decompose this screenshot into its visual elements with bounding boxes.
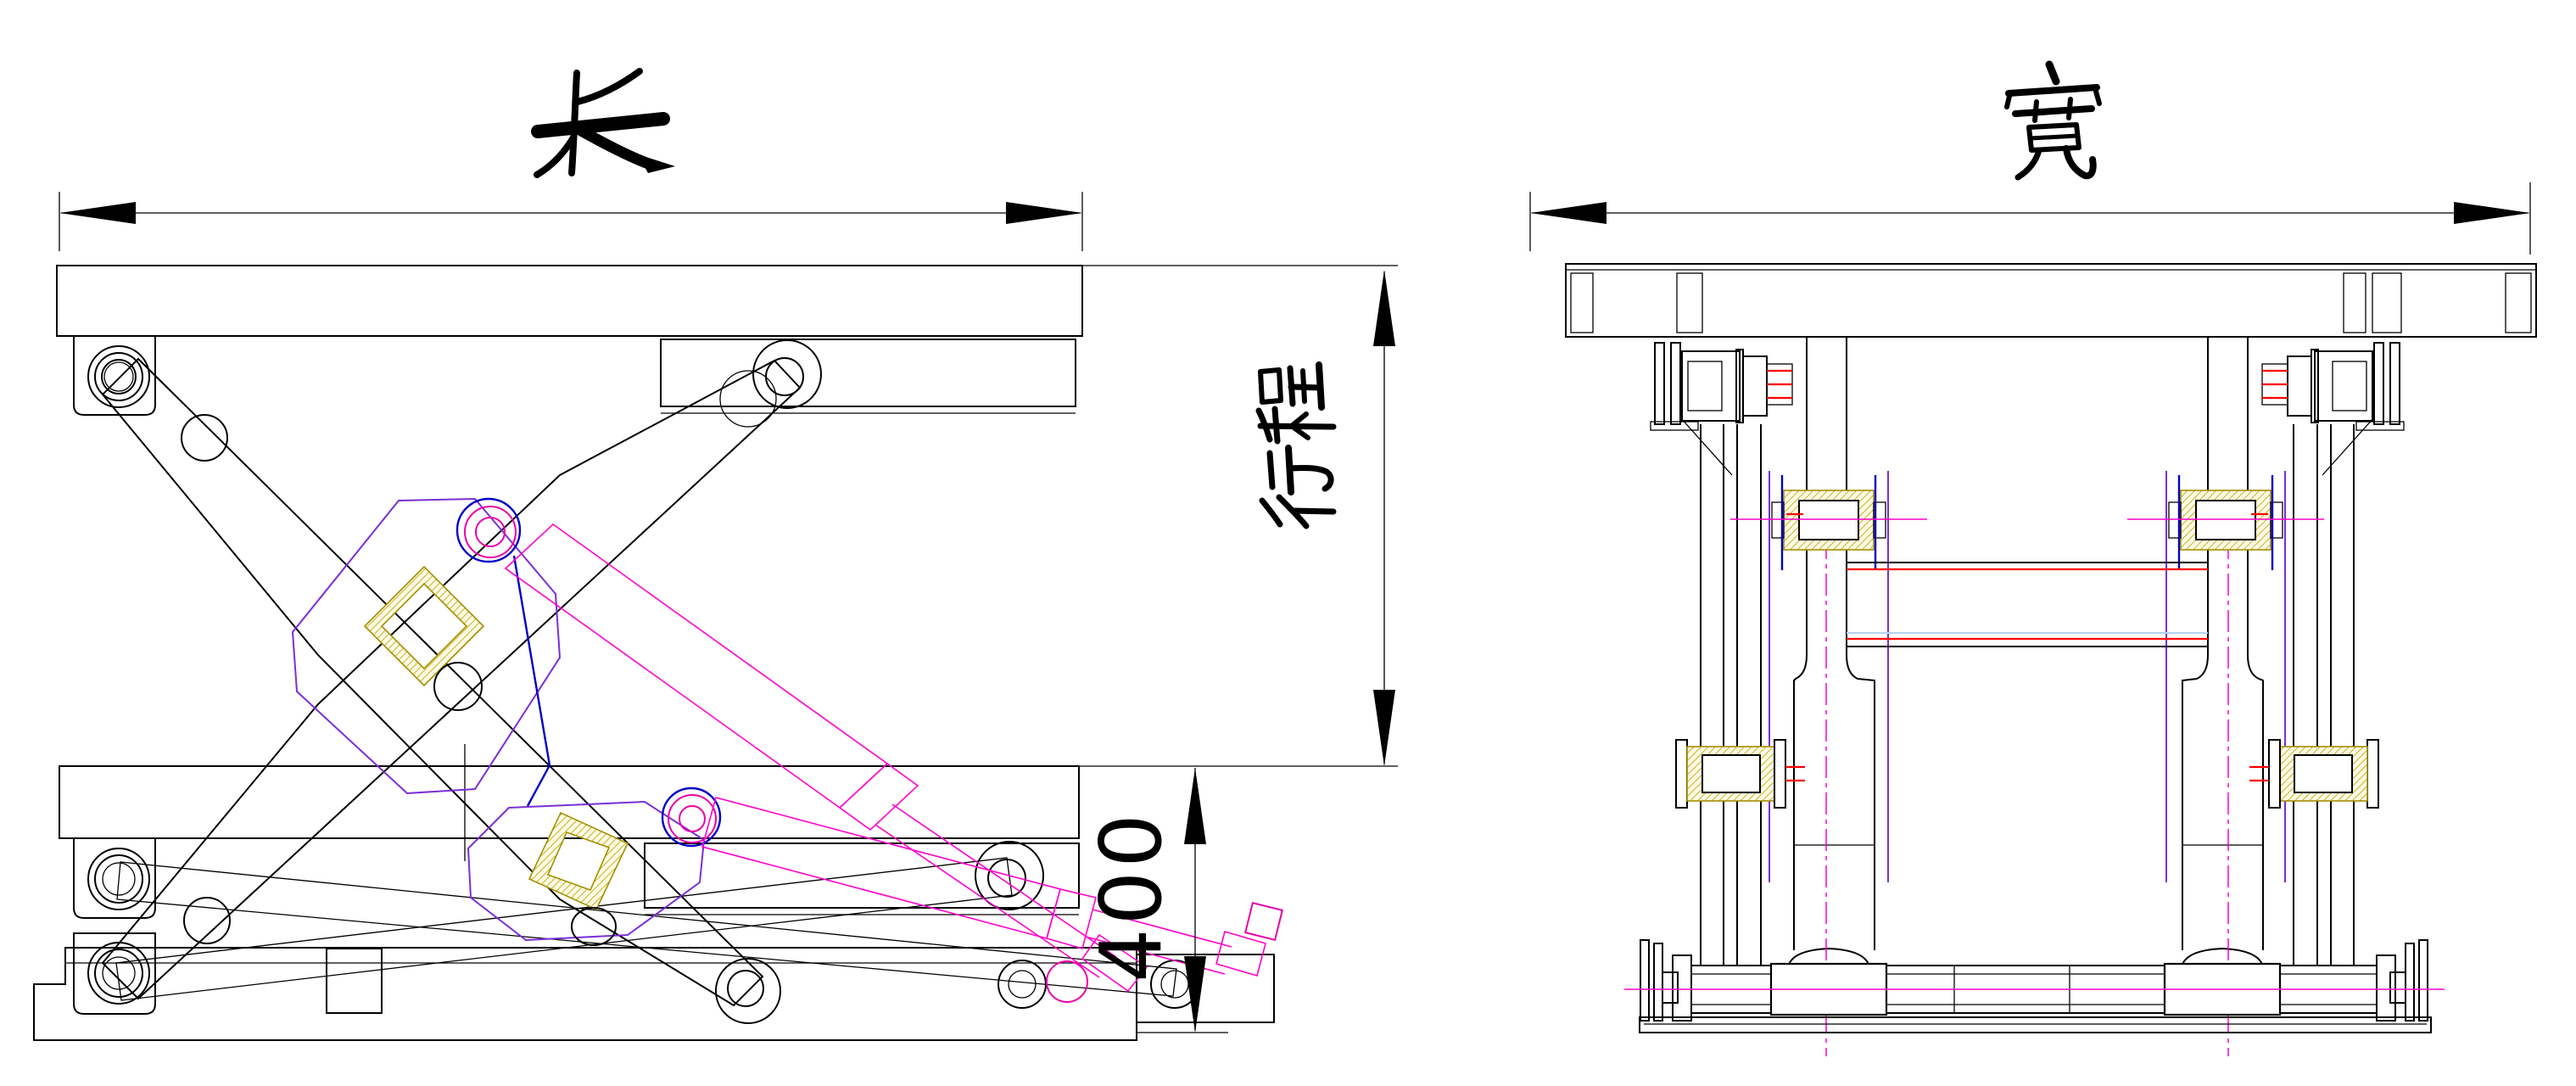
- mid-pivot-right: [2127, 471, 2324, 882]
- length-dimension: 长: [59, 68, 1082, 251]
- lower-pivot-left: [1676, 740, 1805, 808]
- pin-boss-extended: [465, 507, 516, 557]
- mid-pivot-left: [1730, 471, 1927, 882]
- base-front: [1624, 940, 2445, 1033]
- front-view: 宽: [1530, 64, 2536, 1056]
- rib: [1571, 273, 1593, 333]
- drawing-svg: 长: [0, 0, 2576, 1086]
- side-view: 长: [34, 68, 1450, 1040]
- stop-block: [327, 949, 382, 1013]
- rib: [2506, 273, 2531, 333]
- column-right: [2182, 337, 2263, 1056]
- arrowhead-left: [59, 202, 136, 224]
- arrowhead-up: [1373, 270, 1395, 346]
- actuator-anchor-pin: [1245, 903, 1282, 940]
- top-pivot-right: [2262, 343, 2404, 475]
- lower-pivot-right: [2249, 740, 2378, 808]
- rib: [1677, 273, 1702, 333]
- pin-boss-collapsed: [668, 795, 716, 842]
- cross-tube: [1847, 563, 2208, 647]
- end-bolt-right: [2390, 972, 2406, 1003]
- arrowhead-left: [1530, 202, 1607, 224]
- base-plate: [1640, 1017, 2431, 1033]
- arrowhead-up: [1184, 768, 1206, 844]
- collapsed-height-dimension: 400: [1081, 768, 1228, 1033]
- platform-extended: [57, 266, 1398, 427]
- scissor-arm-collapsed-a: [117, 862, 1176, 996]
- scissor-arm-extended-b: [103, 361, 800, 999]
- top-pivot-left: [1651, 343, 1792, 475]
- scissor-arm-collapsed-b: [116, 858, 1012, 1000]
- link-plate-collapsed: [468, 788, 720, 945]
- arrowhead-down: [1184, 956, 1206, 1033]
- link-plate-extended: [293, 499, 560, 806]
- width-dimension: 宽: [1530, 64, 2530, 255]
- roller-channel-collapsed: [645, 843, 1079, 908]
- arrowhead-right: [2454, 202, 2530, 224]
- column-left: [1788, 337, 1875, 1056]
- arm-hole: [182, 415, 227, 461]
- platform-front: [1566, 264, 2536, 337]
- actuator-extended: [506, 524, 1147, 991]
- rib: [2372, 273, 2401, 333]
- straps-left: [1701, 424, 1761, 966]
- arrowhead-down: [1373, 690, 1395, 766]
- cad-drawing-canvas: 长: [0, 0, 2576, 1086]
- end-bolt-left: [1662, 972, 1678, 1003]
- arrowhead-right: [1006, 202, 1082, 224]
- roller-channel-extended: [661, 339, 1076, 406]
- pivot-bracket-top-extended: [74, 336, 155, 415]
- straps-right: [2294, 424, 2354, 966]
- rib: [2344, 273, 2366, 333]
- tube-section-extended: [365, 567, 483, 686]
- tube-section-collapsed: [529, 813, 628, 910]
- collapsed-height-value: 400: [1081, 810, 1181, 982]
- stroke-dimension: 行程: [1247, 270, 1450, 766]
